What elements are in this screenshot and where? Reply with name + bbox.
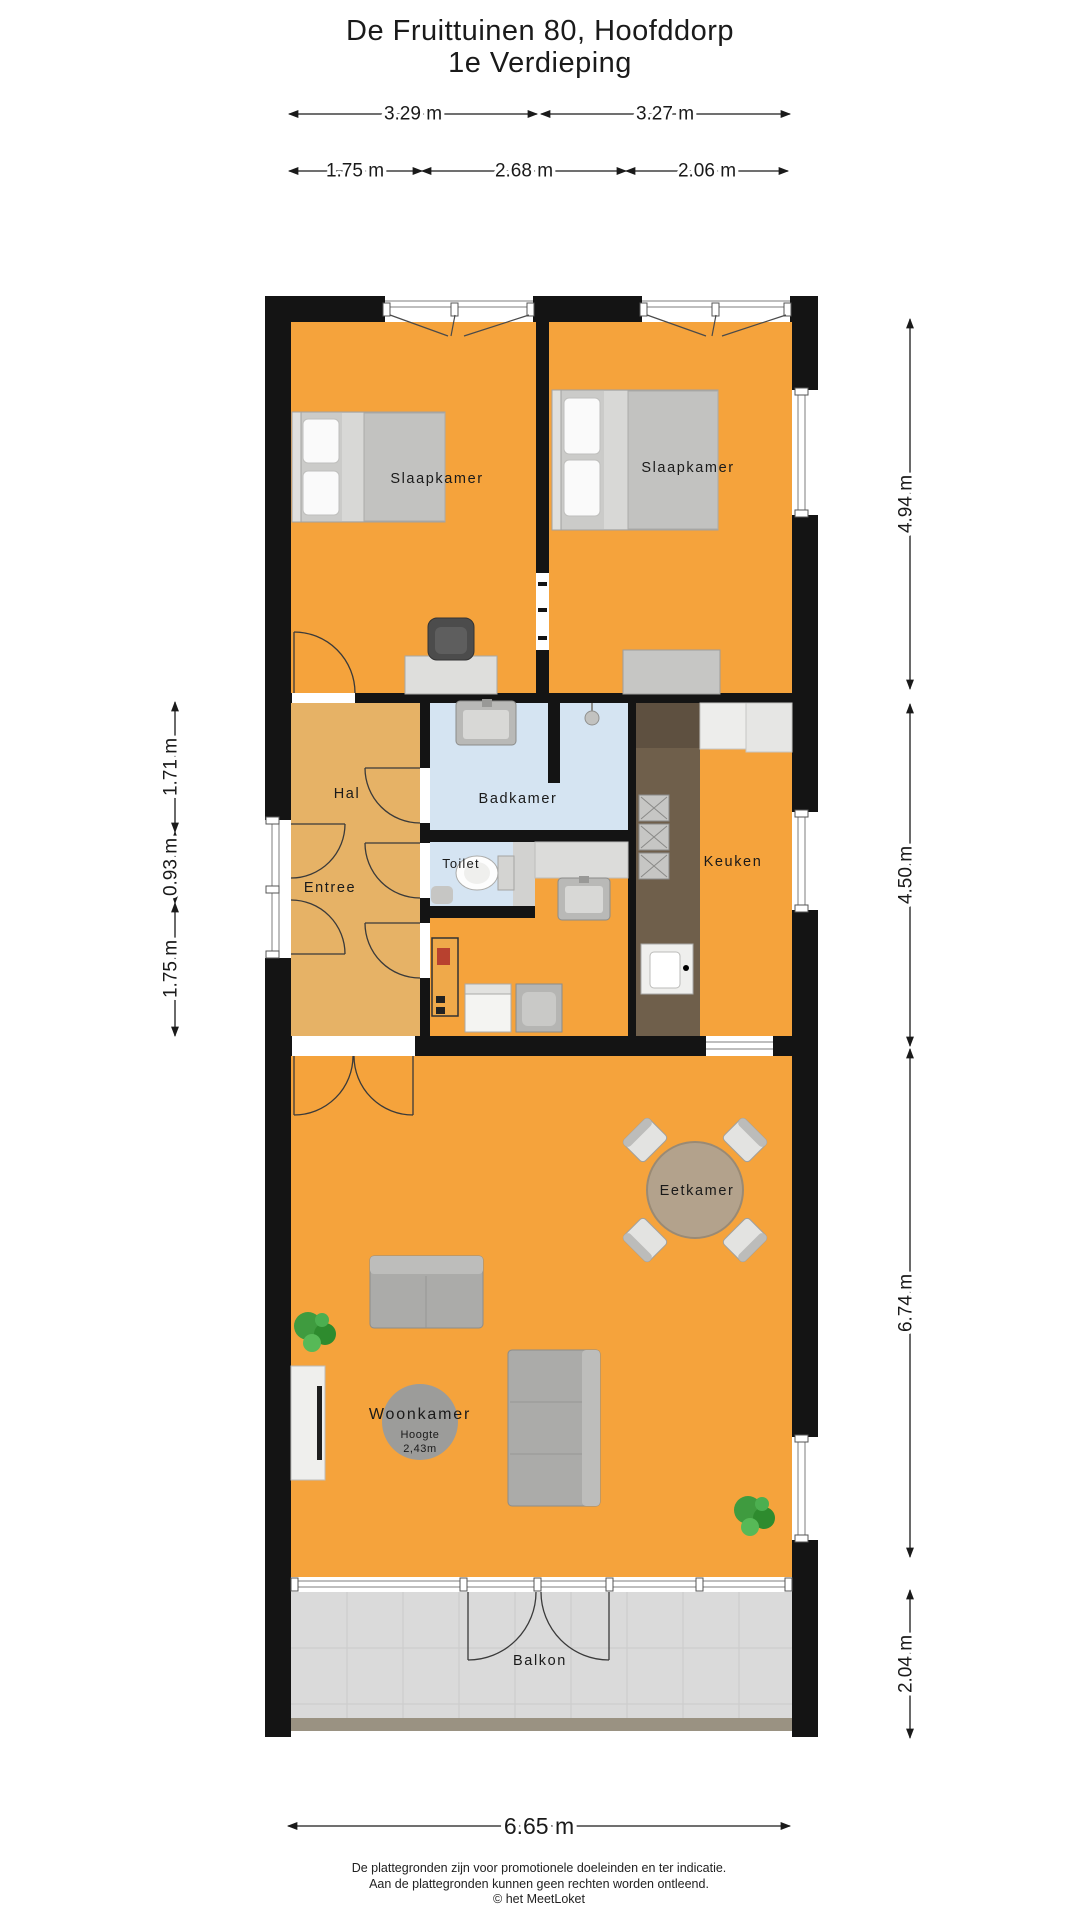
washing-machine: [465, 984, 511, 1032]
tv-screen: [317, 1386, 322, 1460]
opening-utility-door: [420, 923, 430, 978]
kitchen-sink: [641, 944, 693, 994]
label-hoogte-value: 2,43m: [403, 1443, 437, 1455]
utility-closet: [432, 938, 458, 1016]
window-bedroom-right-side: [792, 388, 818, 517]
label-keuken: Keuken: [704, 854, 763, 870]
label-eetkamer: Eetkamer: [660, 1183, 735, 1199]
opening-bathroom-door: [420, 768, 430, 823]
stove: [639, 795, 669, 879]
window-living-side: [792, 1435, 818, 1542]
label-woonkamer: Woonkamer: [369, 1406, 471, 1423]
dim-label-204: 2.04 m: [896, 1635, 917, 1693]
dresser: [623, 650, 720, 694]
balcony-railing: [291, 1718, 792, 1731]
dimension-bottom: 6.65 m: [288, 1813, 790, 1839]
floorplan-canvas: De Fruittuinen 80, Hoofddorp 1e Verdiepi…: [0, 0, 1080, 1920]
opening-kitchen-hatch: [706, 1036, 773, 1056]
sofa-three-seat: [508, 1350, 600, 1506]
dim-label-206: 2.06 m: [678, 161, 736, 182]
dim-label-093: 0.93 m: [161, 838, 182, 896]
dryer: [516, 984, 562, 1032]
toilet-basin: [431, 886, 453, 904]
bathroom-sink: [456, 699, 516, 745]
label-slaapkamer-left: Slaapkamer: [390, 471, 483, 487]
footer-line1: De plattegronden zijn voor promotionele …: [352, 1861, 727, 1875]
opening-toilet-door: [420, 843, 430, 898]
dimensions-left: 1.71 m 0.93 m 1.75 m: [161, 702, 182, 1036]
desk-chair: [428, 618, 474, 660]
tv-cabinet: [291, 1366, 325, 1480]
dim-label-175t: 1.75 m: [326, 161, 384, 182]
window-kitchen-side: [792, 810, 818, 912]
label-toilet: Toilet: [442, 856, 480, 871]
floor-plan: Slaapkamer Slaapkamer Hal Entree Badkame…: [265, 296, 818, 1737]
footer-disclaimer: De plattegronden zijn voor promotionele …: [352, 1861, 727, 1906]
title-line2: 1e Verdieping: [448, 47, 632, 79]
label-hoogte: Hoogte: [400, 1429, 439, 1441]
dim-label-175l: 1.75 m: [161, 940, 182, 998]
dim-label-665: 6.65 m: [504, 1813, 574, 1839]
dim-label-674: 6.74 m: [896, 1274, 917, 1332]
dim-label-329: 3.29 m: [384, 104, 442, 125]
desk: [405, 656, 497, 694]
opening-bedroom-left-door: [292, 693, 355, 703]
front-door-assembly: [265, 817, 291, 958]
label-badkamer: Badkamer: [479, 791, 558, 807]
dim-label-327: 3.27 m: [636, 104, 694, 125]
title-line1: De Fruittuinen 80, Hoofddorp: [346, 15, 734, 47]
bed-left: [292, 412, 445, 522]
label-balkon: Balkon: [513, 1653, 567, 1669]
floorplan-page: De Fruittuinen 80, Hoofddorp 1e Verdiepi…: [0, 0, 1080, 1920]
dim-label-171: 1.71 m: [161, 738, 182, 796]
footer-line3: © het MeetLoket: [493, 1892, 585, 1906]
opening-entree-living: [292, 1036, 415, 1056]
dimensions-right: 4.94 m 4.50 m 6.74 m 2.04 m: [896, 319, 917, 1738]
footer-line2: Aan de plattegronden kunnen geen rechten…: [369, 1877, 709, 1891]
dim-label-450: 4.50 m: [896, 846, 917, 904]
dim-label-494: 4.94 m: [896, 475, 917, 533]
toilet-partition: [513, 842, 535, 906]
dim-label-268: 2.68 m: [495, 161, 553, 182]
label-slaapkamer-right: Slaapkamer: [641, 460, 734, 476]
wall-toilet-bottom: [420, 906, 535, 918]
wall-left: [265, 296, 291, 1737]
wall-bathroom-bottom: [420, 830, 636, 842]
label-hal: Hal: [334, 786, 361, 802]
balcony-window-row: [291, 1577, 792, 1592]
wall-bathroom-kitchen: [628, 703, 636, 1036]
page-title: De Fruittuinen 80, Hoofddorp 1e Verdiepi…: [346, 15, 734, 79]
label-entree: Entree: [304, 880, 356, 896]
wall-shower-stub: [548, 703, 560, 783]
dimensions-top: 3.29 m 3.27 m 1.75 m 2.68 m 2.06 m: [289, 104, 790, 182]
sofa-two-seat: [370, 1256, 483, 1328]
